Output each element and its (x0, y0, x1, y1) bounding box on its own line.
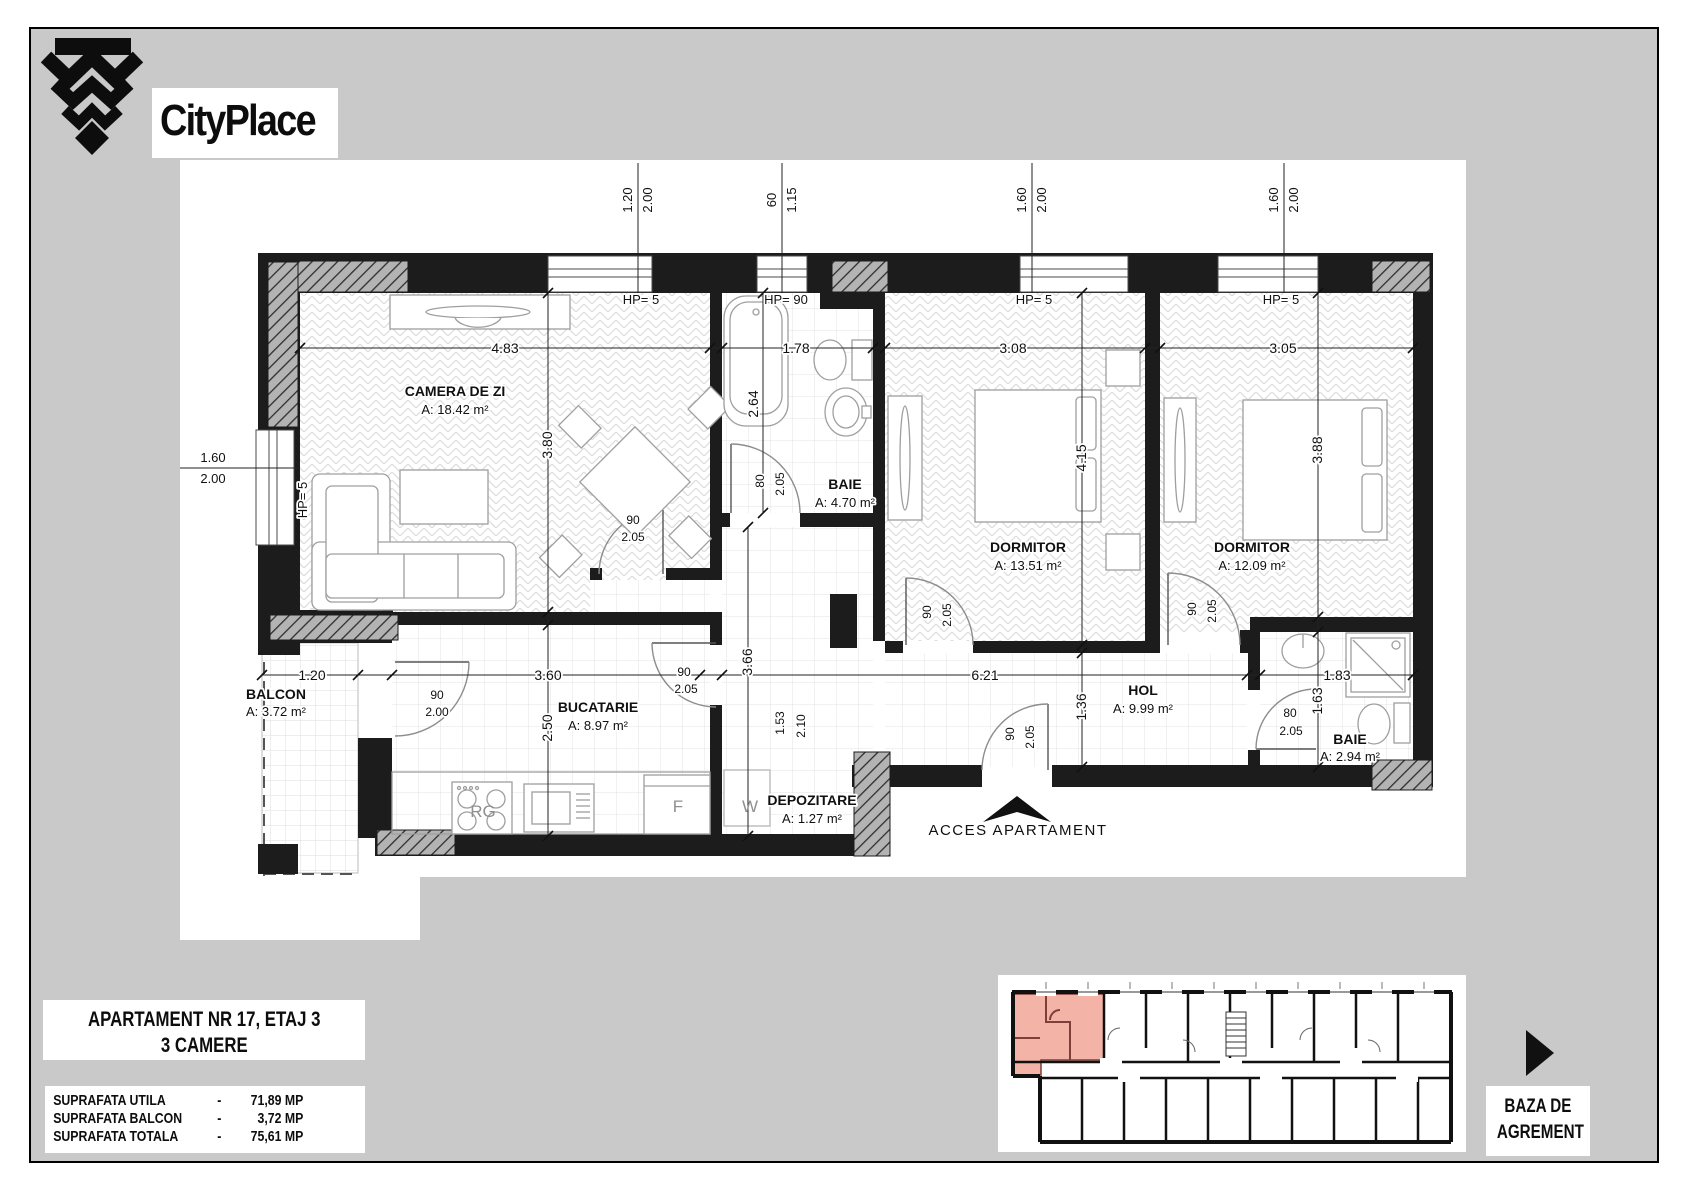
surface-label: SUPRAFATA UTILA (53, 1092, 205, 1109)
plan-label: 2.05 (940, 603, 954, 627)
plan-label: 1.36 (1073, 693, 1089, 720)
brand-name: CityPlace (160, 96, 313, 146)
plan-label: 1.20 (620, 187, 635, 212)
plan-label: DEPOZITARE (767, 792, 856, 808)
plan-label: A: 12.09 m² (1218, 558, 1286, 573)
surface-value: 3,72 MP (234, 1110, 304, 1127)
surface-dash: - (205, 1092, 234, 1109)
plan-label: 2.50 (539, 714, 555, 741)
plan-label: A: 4.70 m² (815, 495, 876, 510)
surface-value: 71,89 MP (234, 1092, 304, 1109)
wardrobe-bedroom1 (888, 396, 922, 520)
plan-label: 90 (430, 688, 444, 702)
plan-label: 1.60 (1014, 187, 1029, 212)
surface-value: 75,61 MP (234, 1128, 304, 1145)
plan-label: 2.05 (674, 682, 698, 696)
plan-label: HP= 5 (1016, 292, 1053, 307)
plan-label: BUCATARIE (558, 699, 638, 715)
plan-label: 3.80 (539, 431, 555, 458)
plan-label: 80 (753, 474, 767, 488)
key-plan-arrow-icon (1526, 1030, 1554, 1076)
plan-label: A: 13.51 m² (994, 558, 1062, 573)
plan-label: A: 8.97 m² (568, 718, 629, 733)
plan-label: DORMITOR (1214, 539, 1290, 555)
plan-label: 2.05 (1205, 599, 1219, 623)
surface-row: SUPRAFATA UTILA - 71,89 MP (45, 1091, 307, 1109)
surface-row: SUPRAFATA TOTALA - 75,61 MP (45, 1127, 307, 1145)
plan-label: 2.64 (745, 390, 761, 417)
wardrobe-bedroom2 (1164, 398, 1196, 522)
plan-label: 3.88 (1309, 436, 1325, 463)
plan-label: RG (470, 802, 496, 821)
window-living-left (256, 430, 294, 545)
baza-de-agrement-label: BAZA DE AGREMENT (1486, 1086, 1590, 1156)
plan-label: 1.60 (1266, 187, 1281, 212)
surface-table: SUPRAFATA UTILA - 71,89 MP SUPRAFATA BAL… (45, 1086, 365, 1153)
plan-label: 2.05 (773, 472, 787, 496)
plan-label: 90 (626, 513, 640, 527)
plan-label: 2.05 (1279, 724, 1303, 738)
plan-label: 2.05 (1023, 725, 1037, 749)
plan-label: 2.00 (425, 705, 449, 719)
title-block: APARTAMENT NR 17, ETAJ 3 3 CAMERE (43, 1000, 365, 1060)
plan-label: 90 (677, 665, 691, 679)
plan-label: HP= 5 (1263, 292, 1300, 307)
plan-label: 90 (1003, 727, 1017, 741)
plan-label: 3.66 (739, 648, 755, 675)
plan-label: 60 (764, 193, 779, 207)
plan-label: 2.00 (1286, 187, 1301, 212)
plan-label: 1.15 (784, 187, 799, 212)
plan-label: 1.53 (773, 711, 787, 735)
surface-dash: - (205, 1110, 234, 1127)
surface-row: SUPRAFATA BALCON - 3,72 MP (45, 1109, 307, 1127)
plan-label: 3.08 (999, 340, 1026, 356)
plan-label: HOL (1128, 682, 1158, 698)
logo-band: CityPlace (152, 88, 338, 158)
plan-label: BAIE (1333, 731, 1366, 747)
plan-label: 3.60 (534, 667, 561, 683)
plan-label: HP= 5 (623, 292, 660, 307)
plan-label: 6.21 (971, 667, 998, 683)
plan-label: 80 (1283, 706, 1297, 720)
plan-label: 2.00 (640, 187, 655, 212)
plan-label: A: 18.42 m² (421, 402, 489, 417)
plan-label: A: 1.27 m² (782, 811, 843, 826)
window-bedroom1 (1020, 256, 1128, 292)
plan-label: 90 (1185, 602, 1199, 616)
plan-label: BALCON (246, 686, 306, 702)
plan-label: 90 (920, 605, 934, 619)
plan-label: 1.60 (200, 450, 225, 465)
shower-bath2 (1346, 633, 1410, 697)
surface-label: SUPRAFATA TOTALA (53, 1128, 205, 1145)
window-bedroom2 (1218, 256, 1318, 292)
plan-label: 1.63 (1309, 687, 1325, 714)
plan-label: HP= 90 (764, 292, 808, 307)
kitchen-sink (524, 784, 594, 832)
bed-bedroom2 (1243, 400, 1387, 540)
plan-label: 1.78 (782, 340, 809, 356)
plan-label: A: 9.99 m² (1113, 701, 1174, 716)
baza-line1: BAZA DE (1505, 1094, 1572, 1120)
plan-label: F (673, 797, 683, 816)
plan-label: W (742, 797, 758, 816)
surface-label: SUPRAFATA BALCON (53, 1110, 205, 1127)
page: CAMERA DE ZIA: 18.42 m²BAIEA: 4.70 m²DOR… (0, 0, 1683, 1190)
plan-label: 3.05 (1269, 340, 1296, 356)
cityplace-logo-icon (46, 38, 138, 155)
plan-label: DORMITOR (990, 539, 1066, 555)
plan-label: ACCES APARTAMENT (928, 822, 1107, 839)
baza-line2: AGREMENT (1497, 1120, 1584, 1146)
plan-label: BAIE (828, 476, 861, 492)
key-plan (998, 975, 1466, 1152)
plan-label: CAMERA DE ZI (405, 383, 506, 399)
plan-label: 2.00 (200, 471, 225, 486)
plan-label: 2.10 (794, 714, 808, 738)
plan-label: A: 2.94 m² (1320, 749, 1381, 764)
stair-icon (1226, 1012, 1246, 1056)
plan-label: 4.83 (491, 340, 518, 356)
plan-label: 1.83 (1323, 667, 1350, 683)
window-living (548, 256, 652, 292)
apartment-subtitle: 3 CAMERE (161, 1034, 248, 1058)
plan-label: HP= 5 (295, 482, 310, 519)
plan-label: 2.05 (621, 530, 645, 544)
plan-label: 4.15 (1073, 444, 1089, 471)
plan-label: 1.20 (298, 667, 325, 683)
plan-label: A: 3.72 m² (246, 704, 307, 719)
apartment-title: APARTAMENT NR 17, ETAJ 3 (88, 1008, 320, 1032)
plan-label: 2.00 (1034, 187, 1049, 212)
coffee-table (400, 470, 488, 524)
tv-console (390, 295, 570, 329)
surface-dash: - (205, 1128, 234, 1145)
